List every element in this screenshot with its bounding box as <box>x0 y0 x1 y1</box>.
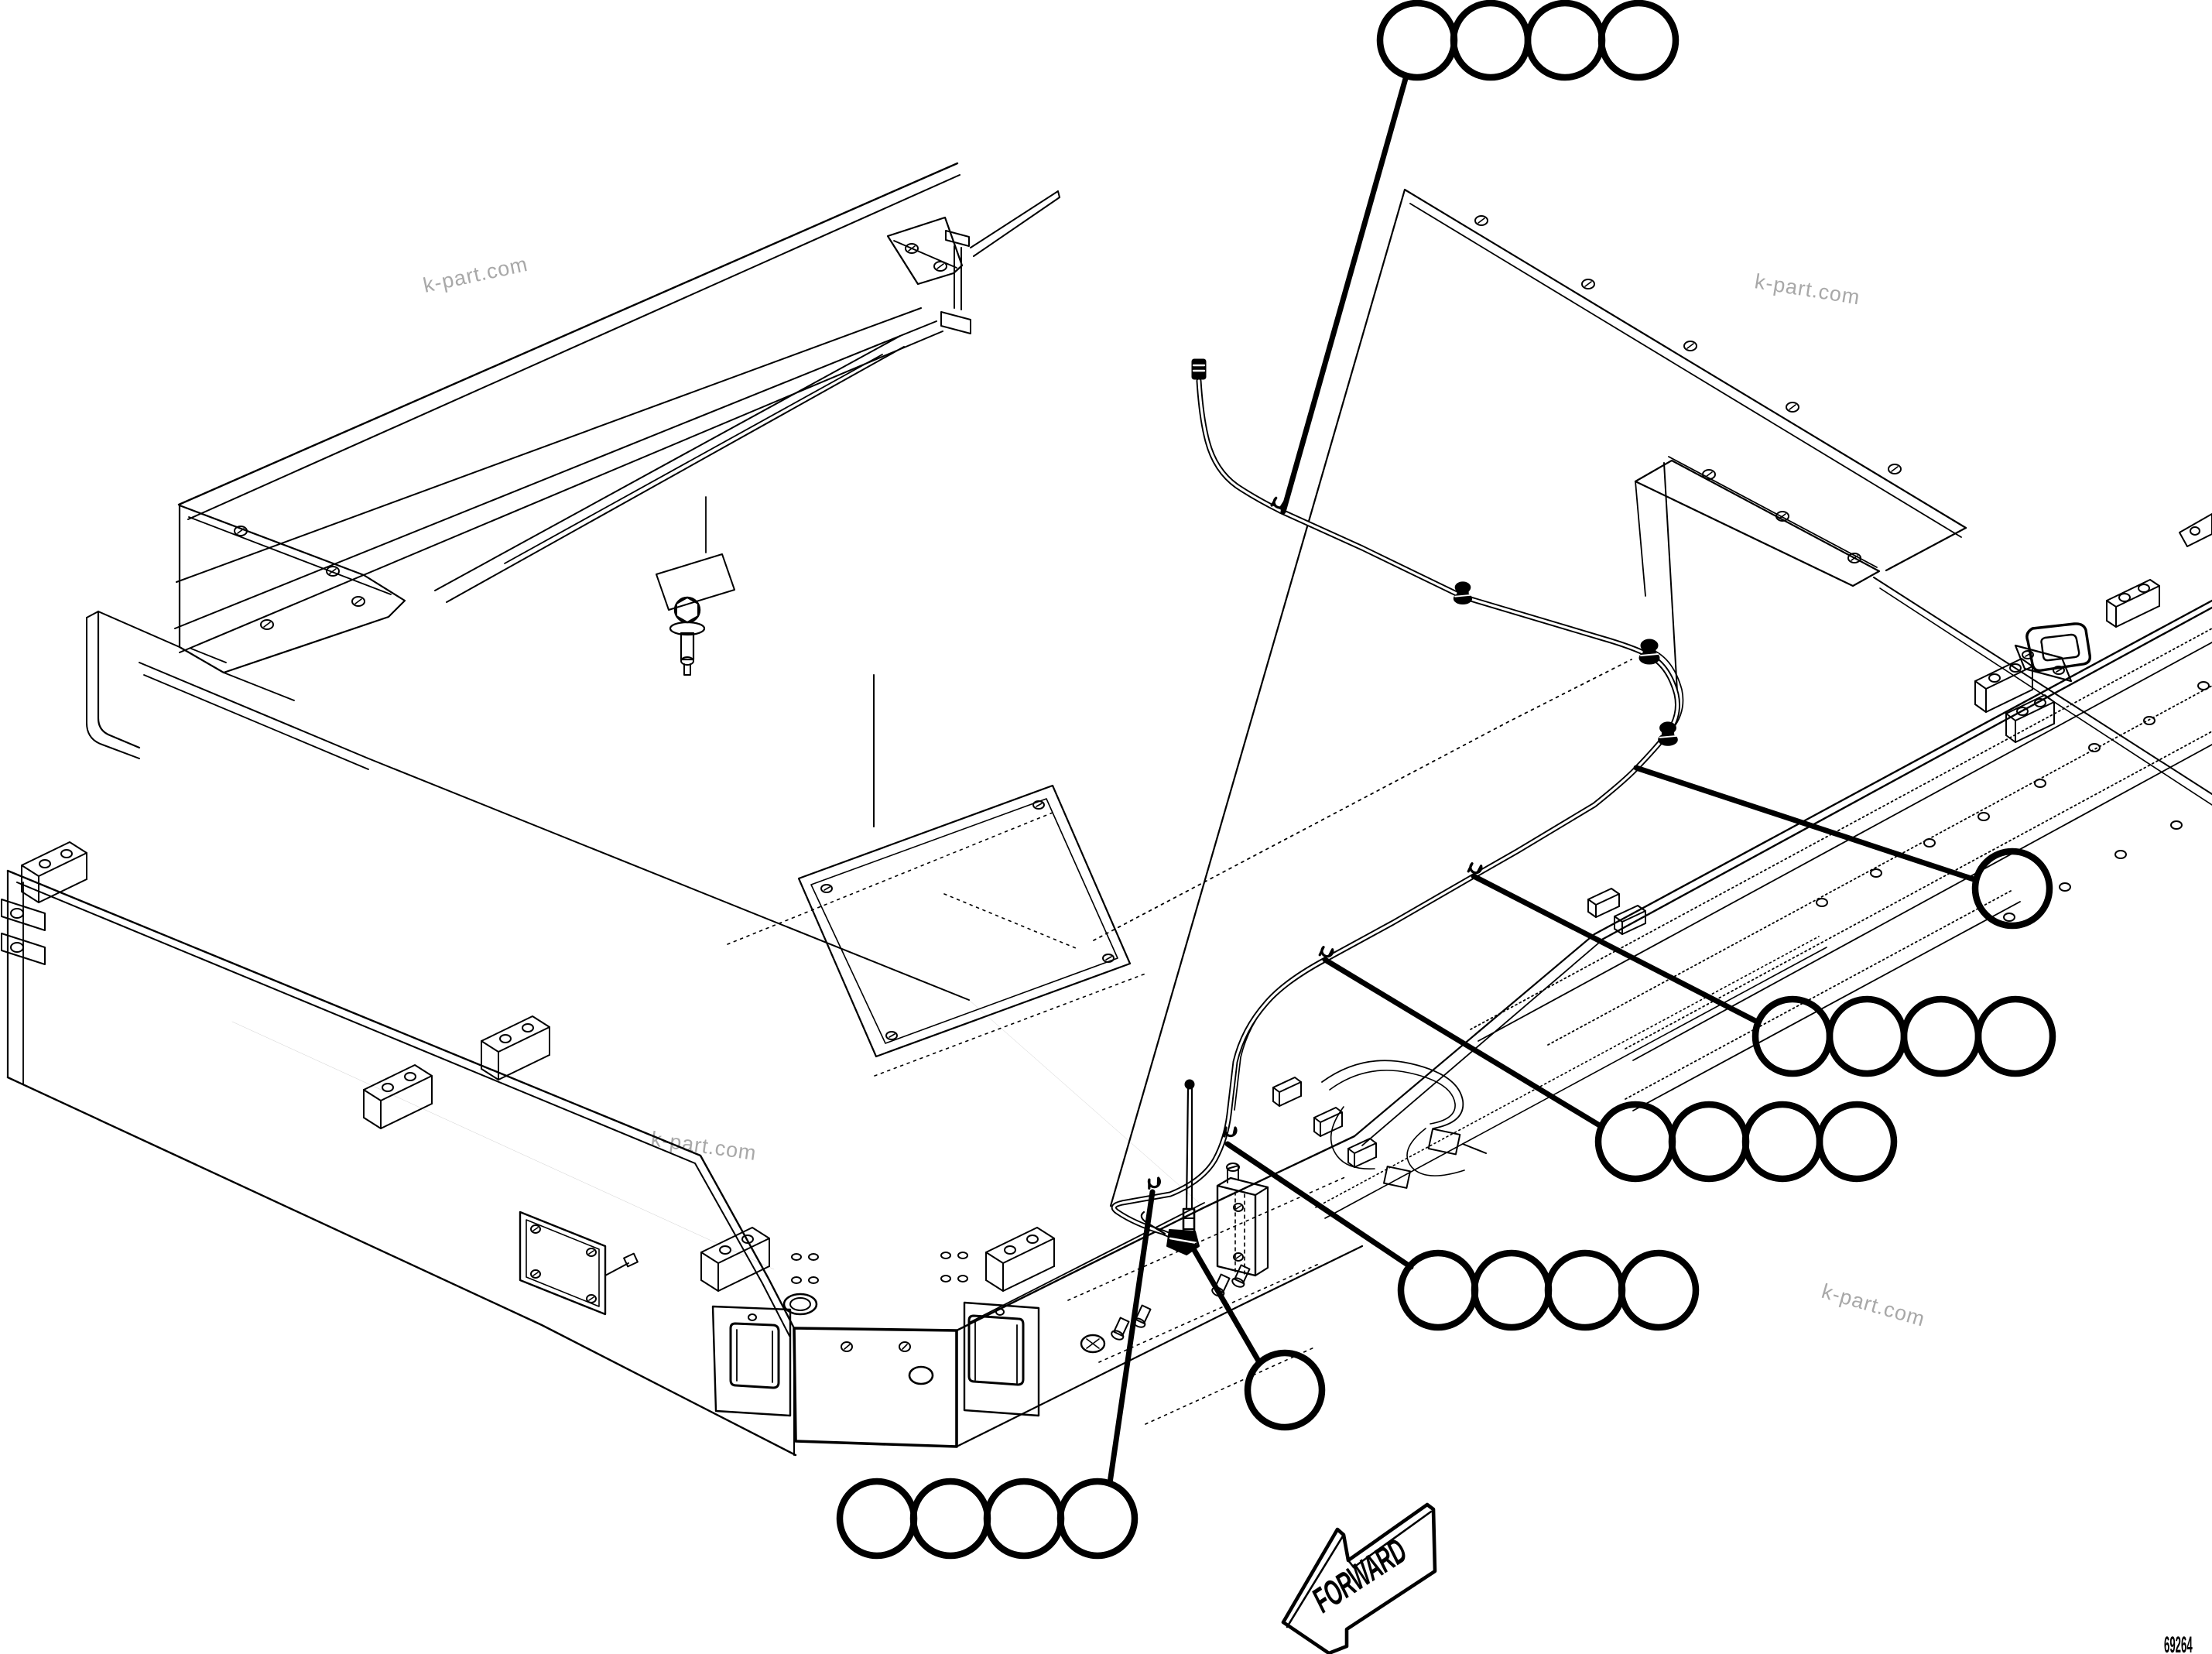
svg-text:69264: 69264 <box>2164 1632 2193 1654</box>
